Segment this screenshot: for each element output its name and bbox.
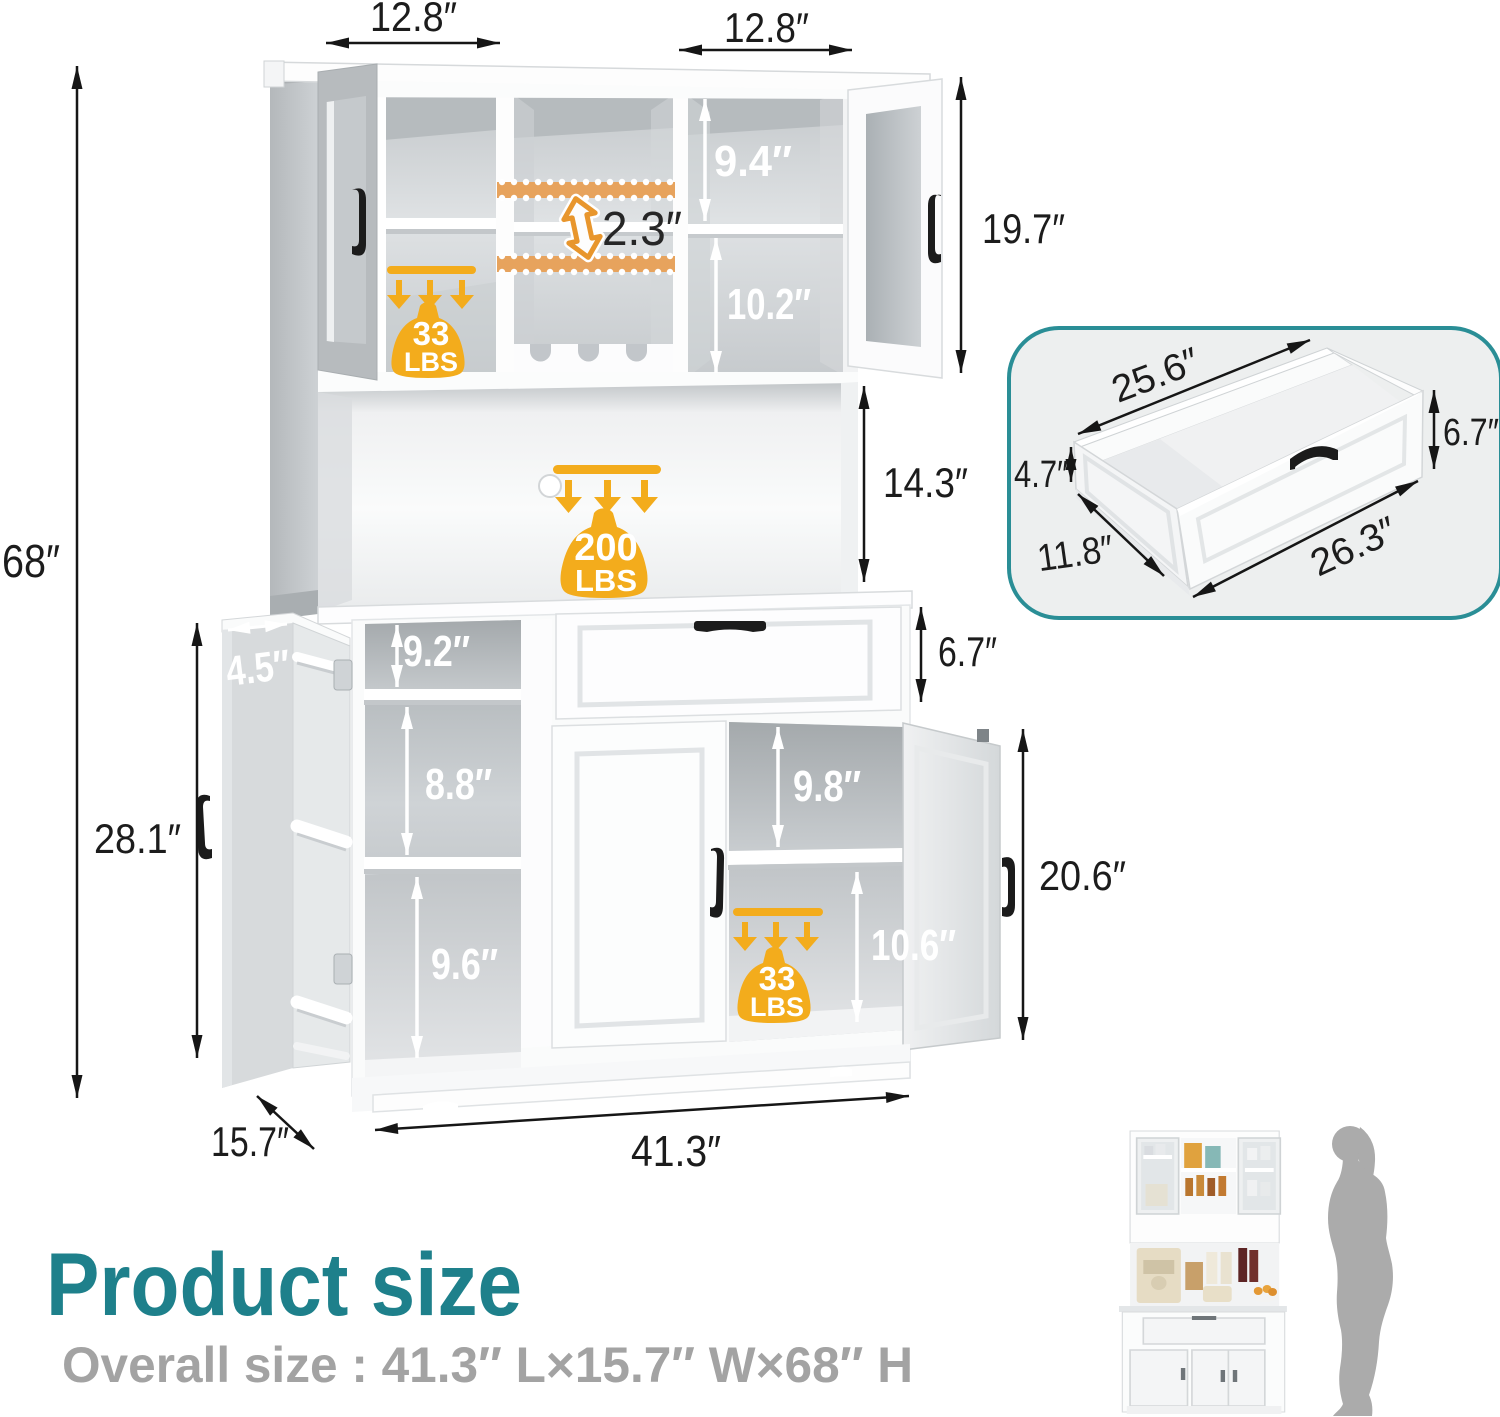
svg-text:19.7″: 19.7″	[982, 205, 1065, 252]
svg-text:Product size: Product size	[46, 1234, 522, 1334]
svg-text:41.3″: 41.3″	[631, 1127, 721, 1176]
svg-text:15.7″: 15.7″	[211, 1118, 289, 1165]
svg-text:9.8″: 9.8″	[793, 762, 861, 811]
svg-text:9.4″: 9.4″	[714, 137, 792, 186]
svg-text:LBS: LBS	[575, 563, 637, 598]
svg-text:8.8″: 8.8″	[425, 760, 492, 809]
svg-text:68″: 68″	[2, 535, 60, 587]
svg-text:20.6″: 20.6″	[1039, 852, 1126, 899]
svg-text:12.8″: 12.8″	[724, 4, 809, 51]
svg-text:10.2″: 10.2″	[727, 280, 811, 329]
svg-text:LBS: LBS	[750, 992, 804, 1022]
svg-text:9.2″: 9.2″	[403, 627, 470, 676]
svg-text:Overall size : 41.3″ L×15.7″ W: Overall size : 41.3″ L×15.7″ W×68″ H	[62, 1337, 913, 1393]
svg-text:2.3″: 2.3″	[602, 203, 682, 256]
svg-text:9.6″: 9.6″	[431, 940, 498, 989]
svg-text:14.3″: 14.3″	[883, 459, 968, 506]
svg-text:28.1″: 28.1″	[94, 815, 181, 862]
svg-text:4.7″: 4.7″	[1014, 454, 1068, 496]
svg-text:4.5″: 4.5″	[223, 640, 292, 694]
svg-text:LBS: LBS	[404, 347, 458, 377]
svg-text:12.8″: 12.8″	[370, 0, 457, 40]
svg-text:6.7″: 6.7″	[1443, 412, 1499, 454]
svg-text:6.7″: 6.7″	[938, 628, 997, 675]
svg-text:10.6″: 10.6″	[871, 921, 956, 970]
